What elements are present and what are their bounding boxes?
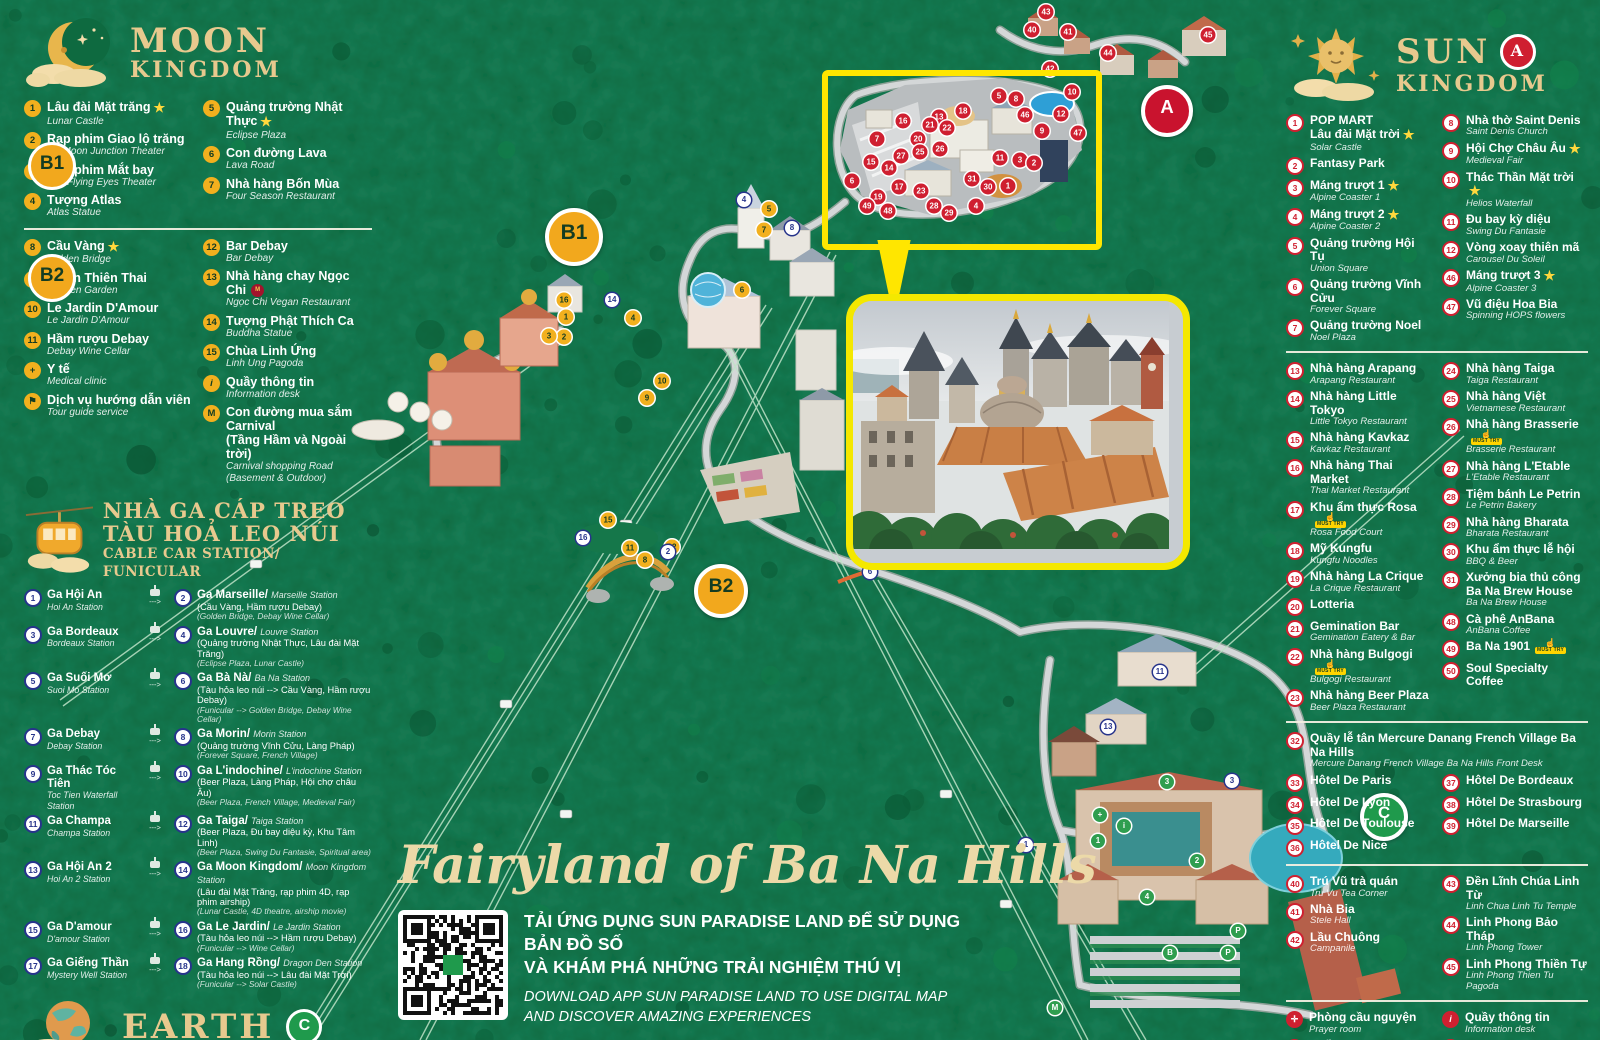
station-detail-en: (Eclipse Plaza, Lunar Castle) xyxy=(197,659,372,668)
station-number: 7 xyxy=(24,728,42,746)
item-name-en: Mercure Danang French Village Ba Na Hill… xyxy=(1310,759,1588,770)
item-number: 3 xyxy=(1286,179,1304,197)
legend-zone-badge-b1: B1 xyxy=(28,142,76,190)
legend-item: 3Máng trượt 1★Alpine Coaster 1 xyxy=(1286,179,1432,204)
cable-route-row: 1Ga Hội AnHoi An Station--->2Ga Marseill… xyxy=(24,589,372,621)
cable-car-icon: ---> xyxy=(140,815,170,858)
item-number: 13 xyxy=(1286,362,1304,380)
legend-item: 18Mỹ KungfuKungfu Noodles xyxy=(1286,542,1432,566)
item-number: 38 xyxy=(1442,796,1460,814)
item-name-vi: Chùa Linh Ứng xyxy=(226,344,316,358)
station-name: Ga Louvre/ Louvre Station xyxy=(197,626,372,639)
item-name-en: Brasserie Restaurant xyxy=(1466,445,1588,456)
item-name-vi: Y tế xyxy=(47,362,106,376)
legend-item: iQuầy thông tinInformation desk xyxy=(203,375,372,401)
item-name-en: AnBana Coffee xyxy=(1466,626,1554,637)
prayer-room-icon: ✛ xyxy=(1286,1011,1303,1028)
item-name-en: Linh Chua Linh Tu Temple xyxy=(1466,902,1588,913)
item-name-vi: Hội Chợ Châu Âu★ xyxy=(1466,142,1581,157)
item-name-vi: Hầm rượu Debay xyxy=(47,332,149,346)
item-name-vi: Rạp phim Giao lộ trăng xyxy=(47,132,185,146)
left-legend-column: MOON KINGDOM 1Lâu đài Mặt trăng★Lunar Ca… xyxy=(24,16,372,1040)
station-detail-en: (Beer Plaza, French Village, Medieval Fa… xyxy=(197,798,372,807)
item-number: 34 xyxy=(1286,796,1304,814)
sun-divider-2 xyxy=(1286,721,1588,723)
station-name-en: Suoi Mo Station xyxy=(47,685,111,695)
item-name-en: Thai Market Restaurant xyxy=(1310,486,1432,497)
item-name-en: Debay Wine Cellar xyxy=(47,346,149,358)
station-detail-en: (Funicular --> Solar Castle) xyxy=(197,980,362,989)
item-name-vi: Thác Thần Mặt trời★ xyxy=(1466,171,1588,199)
station-name-vi: Ga D'amour xyxy=(47,921,112,934)
item-name-en: Medical clinic xyxy=(47,376,106,388)
legend-item: 6Con đường LavaLava Road xyxy=(203,146,372,172)
station-name-vi: Ga Thác Tóc Tiên xyxy=(47,765,136,791)
station-number: 3 xyxy=(24,626,42,644)
legend-item: 26Nhà hàng Brasserie☝MUST TRYBrasserie R… xyxy=(1442,418,1588,456)
item-name-vi: Cầu Vàng★ xyxy=(47,239,119,255)
item-name-en: Tour guide service xyxy=(47,407,191,419)
item-name-vi: Máng trượt 1★ xyxy=(1310,179,1399,194)
legend-item: 4Máng trượt 2★Alpine Coaster 2 xyxy=(1286,208,1432,233)
earth-title: EARTH xyxy=(122,1010,274,1040)
item-name-en: Taiga Restaurant xyxy=(1466,376,1554,387)
legend-item: MCon đường mua sắm Carnival(Tầng Hầm và … xyxy=(203,405,372,484)
legend-item: 37Hôtel De Bordeaux xyxy=(1442,774,1588,792)
station-detail-en: (Golden Bridge, Debay Wine Cellar) xyxy=(197,612,338,621)
station-number: 2 xyxy=(174,589,192,607)
station-name: Ga Marseille/ Marseille Station xyxy=(197,589,338,602)
station-number: 1 xyxy=(24,589,42,607)
station-number: 4 xyxy=(174,626,192,644)
must-try-badge: ☝MUST TRY xyxy=(1315,514,1346,528)
item-name-vi: Nhà hàng L'Etable xyxy=(1466,460,1570,473)
item-name-vi: Ba Na 1901☝MUST TRY xyxy=(1466,640,1566,654)
item-number: 14 xyxy=(203,314,220,331)
station-number: 10 xyxy=(174,765,192,783)
item-name-en: Kavkaz Restaurant xyxy=(1310,445,1409,456)
star-icon: ★ xyxy=(1569,142,1581,157)
item-number: 1 xyxy=(1286,114,1304,132)
app-qr-code xyxy=(398,910,508,1020)
station-number: 11 xyxy=(24,815,42,833)
station-number: 18 xyxy=(174,957,192,975)
item-name-vi: Quảng trường Vĩnh Cửu xyxy=(1310,278,1432,305)
legend-item: 14Tượng Phật Thích CaBuddha Statue xyxy=(203,314,372,340)
station-number: 15 xyxy=(24,921,42,939)
legend-item: 25Nhà hàng ViệtVietnamese Restaurant xyxy=(1442,390,1588,414)
item-name-vi: Máng trượt 2★ xyxy=(1310,208,1399,223)
item-name-vi: Hôtel De Marseille xyxy=(1466,817,1569,830)
item-name-vi: Mỹ Kungfu xyxy=(1310,542,1378,555)
station-name-en: Toc Tien Waterfall Station xyxy=(47,790,136,810)
item-name-vi: Nhà hàng Bulgogi☝MUST TRY xyxy=(1310,648,1432,675)
must-try-badge: ☝MUST TRY xyxy=(1315,661,1346,675)
footer: Fairyland of Ba Na Hills TẢI ỨNG DỤNG SU… xyxy=(398,838,998,1027)
earth-zone-badge: C xyxy=(286,1009,322,1040)
item-number: 37 xyxy=(1442,774,1460,792)
legend-item: 5Quảng trường Nhật Thực★Eclipse Plaza xyxy=(203,100,372,141)
legend-item: 11Đu bay kỳ diệuSwing Du Fantasie xyxy=(1442,213,1588,237)
item-name-vi: Nhà hàng Bốn Mùa xyxy=(226,177,339,191)
item-name-en: Gemination Eatery & Bar xyxy=(1310,633,1415,644)
moon-list-2: 8Cầu Vàng★Golden Bridge9Vườn Thiên ThaiH… xyxy=(24,239,372,490)
station-detail-vi: (Tàu hỏa leo núi --> Cầu Vàng, Hầm rượu … xyxy=(197,685,372,706)
legend-item: 15Chùa Linh ỨngLinh Ung Pagoda xyxy=(203,344,372,370)
item-name-en: Bharata Restaurant xyxy=(1466,529,1569,540)
app-cta-vi-line1: TẢI ỨNG DỤNG SUN PARADISE LAND ĐỂ SỬ DỤN… xyxy=(524,910,998,956)
app-cta-vi-line2: VÀ KHÁM PHÁ NHỮNG TRẢI NGHIỆM THÚ VỊ xyxy=(524,956,998,979)
legend-item: 12Bar DebayBar Debay xyxy=(203,239,372,265)
cable-title-vi-2: TÀU HOẢ LEO NÚI xyxy=(103,522,372,545)
legend-item: 5Quảng trường Hội TụUnion Square xyxy=(1286,237,1432,275)
sun-spiritual: 40Trú Vũ trà quánTru Vu Tea Corner41Nhà … xyxy=(1286,875,1588,996)
item-name-vi: Phòng cầu nguyện xyxy=(1309,1011,1416,1024)
item-number: 14 xyxy=(1286,390,1304,408)
item-number: 11 xyxy=(1442,213,1460,231)
station-detail-vi: (Beer Plaza, Làng Pháp, Hội chợ châu Âu) xyxy=(197,777,372,798)
sun-dining: 13Nhà hàng ArapangArapang Restaurant14Nh… xyxy=(1286,362,1588,717)
item-name-en: Carousel Du Soleil xyxy=(1466,255,1579,266)
legend-item: 13Nhà hàng chay Ngọc ChiMNgọc Chi Vegan … xyxy=(203,269,372,309)
station-number: 9 xyxy=(24,765,42,783)
item-number: 5 xyxy=(1286,237,1304,255)
legend-item: 1Lâu đài Mặt trăng★Lunar Castle xyxy=(24,100,193,127)
item-name-en: Alpine Coaster 1 xyxy=(1310,193,1399,204)
station-name-en: Dragon Den Station xyxy=(283,958,362,968)
item-number: 10 xyxy=(24,301,41,318)
station-detail-en: (Beer Plaza, Swing Du Fantasie, Spiritua… xyxy=(197,848,372,857)
item-name-en: Medieval Fair xyxy=(1466,156,1581,167)
item-number: 6 xyxy=(1286,278,1304,296)
item-name-vi: Linh Phong Bảo Tháp xyxy=(1466,916,1588,943)
information-icon: i xyxy=(1442,1011,1459,1028)
legend-item: 1POP MARTLâu đài Mặt trời★Solar Castle xyxy=(1286,114,1432,154)
item-number: 9 xyxy=(1442,142,1460,160)
legend-item: 24Nhà hàng TaigaTaiga Restaurant xyxy=(1442,362,1588,386)
sun-services: ✛Phòng cầu nguyệnPrayer room+Y tếMedical… xyxy=(1286,1011,1588,1040)
highlight-box xyxy=(822,70,1102,250)
item-number: 27 xyxy=(1442,460,1460,478)
station-name: Ga Bà Nà/ Ba Na Station xyxy=(197,672,372,685)
cable-route-row: 7Ga DebayDebay Station--->8Ga Morin/ Mor… xyxy=(24,728,372,760)
station-name-vi: Ga Hội An xyxy=(47,589,103,602)
item-name-pre: POP MART xyxy=(1310,114,1415,127)
item-number: 10 xyxy=(1442,171,1460,189)
item-name-en: Little Tokyo Restaurant xyxy=(1310,417,1432,428)
item-name-en: Helios Waterfall xyxy=(1466,199,1588,210)
item-name-en: Ngọc Chi Vegan Restaurant xyxy=(226,297,372,309)
moon-kingdom-header: MOON KINGDOM xyxy=(24,16,372,90)
item-number: 8 xyxy=(1442,114,1460,132)
item-name-vi: Hôtel De Paris xyxy=(1310,774,1391,787)
item-number: 23 xyxy=(1286,689,1304,707)
item-name-vi: Quảng trường Noel xyxy=(1310,319,1421,332)
station-name-en: Bordeaux Station xyxy=(47,638,119,648)
station-name-en: D'amour Station xyxy=(47,934,112,944)
item-name-en: Bulgogi Restaurant xyxy=(1310,675,1432,686)
item-name-en: Information desk xyxy=(1465,1025,1550,1036)
tour-guide-icon: ⚑ xyxy=(24,393,41,410)
item-name-vi: Soul Specialty Coffee xyxy=(1466,662,1588,689)
legend-item: 39Hôtel De Marseille xyxy=(1442,817,1588,835)
item-name-vi: Nhà hàng Arapang xyxy=(1310,362,1416,375)
cable-route-row: 11Ga ChampaChampa Station--->12Ga Taiga/… xyxy=(24,815,372,858)
item-number: 30 xyxy=(1442,543,1460,561)
item-name-vi: Hôtel De Strasbourg xyxy=(1466,796,1582,809)
legend-item: 22Nhà hàng Bulgogi☝MUST TRYBulgogi Resta… xyxy=(1286,648,1432,686)
item-name-vi: Nhà hàng Beer Plaza xyxy=(1310,689,1429,702)
item-name-en: Four Season Restaurant xyxy=(226,191,339,203)
item-name-vi: Trú Vũ trà quán xyxy=(1310,875,1398,888)
item-number: 7 xyxy=(203,177,220,194)
item-name-en: Tru Vu Tea Corner xyxy=(1310,889,1398,900)
sun-hotels: 33Hôtel De Paris34Hôtel De Lyon35Hôtel D… xyxy=(1286,774,1588,860)
legend-item: 16Nhà hàng Thai MarketThai Market Restau… xyxy=(1286,459,1432,497)
legend-item: 38Hôtel De Strasbourg xyxy=(1442,796,1588,814)
french-village-photo-inset xyxy=(846,294,1190,570)
item-number: 28 xyxy=(1442,488,1460,506)
item-name-vi: Dịch vụ hướng dẫn viên xyxy=(47,393,191,407)
station-detail-vi: (Lâu đài Mặt Trăng, rạp phim 4D, rạp phi… xyxy=(197,887,372,908)
item-number: 17 xyxy=(1286,501,1304,519)
item-name-en: Forever Square xyxy=(1310,305,1432,316)
item-name-en: Information desk xyxy=(226,389,314,401)
item-name-en: Stele Hall xyxy=(1310,916,1355,927)
legend-item: 44Linh Phong Bảo ThápLinh Phong Tower xyxy=(1442,916,1588,954)
item-number: 2 xyxy=(1286,157,1304,175)
legend-item: ⚑Dịch vụ hướng dẫn viênTour guide servic… xyxy=(24,393,193,419)
station-number: 8 xyxy=(174,728,192,746)
item-number: 25 xyxy=(1442,390,1460,408)
item-name-en: Bar Debay xyxy=(226,253,288,265)
item-number: 13 xyxy=(203,269,220,286)
legend-item: 29Nhà hàng BharataBharata Restaurant xyxy=(1442,516,1588,540)
legend-item: 33Hôtel De Paris xyxy=(1286,774,1432,792)
information-icon: i xyxy=(203,375,220,392)
item-name-en: Rosa Food Court xyxy=(1310,528,1432,539)
item-number: 43 xyxy=(1442,875,1460,893)
poster-title: Fairyland of Ba Na Hills xyxy=(398,838,998,894)
item-number: 21 xyxy=(1286,620,1304,638)
item-name-vi: Khu ẩm thực Rosa☝MUST TRY xyxy=(1310,501,1432,528)
item-name-en: Linh Ung Pagoda xyxy=(226,358,316,370)
legend-item: 21Gemination BarGemination Eatery & Bar xyxy=(1286,620,1432,644)
item-number: 19 xyxy=(1286,570,1304,588)
item-number: 36 xyxy=(1286,839,1304,857)
station-number: 14 xyxy=(174,861,192,879)
item-name-vi: Lâu đài Mặt trời★ xyxy=(1310,128,1415,143)
legend-item: 41Nhà BiaStele Hall xyxy=(1286,903,1432,927)
legend-item: 11Hầm rượu DebayDebay Wine Cellar xyxy=(24,332,193,358)
item-number: 32 xyxy=(1286,732,1304,750)
legend-item: 47Vũ điệu Hoa BiaSpinning HOPS flowers xyxy=(1442,298,1588,322)
cable-car-header: NHÀ GA CÁP TREO TÀU HOẢ LEO NÚI CABLE CA… xyxy=(24,499,372,581)
station-name-vi: Ga Hội An 2 xyxy=(47,861,112,874)
station-name: Ga Taiga/ Taiga Station xyxy=(197,815,372,828)
station-name: Ga Moon Kingdom/ Moon Kingdom Station xyxy=(197,861,372,886)
item-number: 7 xyxy=(1286,319,1304,337)
item-name-en: Linh Phong Thien Tu Pagoda xyxy=(1466,971,1588,993)
cable-route-row: 5Ga Suối MơSuoi Mo Station--->6Ga Bà Nà/… xyxy=(24,672,372,724)
star-icon: ★ xyxy=(1469,184,1481,199)
legend-item: 10Thác Thần Mặt trời★Helios Waterfall xyxy=(1442,171,1588,210)
item-number: 5 xyxy=(203,100,220,117)
item-name-vi: Nhà hàng Brasserie☝MUST TRY xyxy=(1466,418,1588,445)
station-name-vi: Ga Giếng Thần xyxy=(47,957,129,970)
item-name-en: BBQ & Beer xyxy=(1466,557,1575,568)
item-name-en: Prayer room xyxy=(1309,1025,1416,1036)
moon-list-1: 1Lâu đài Mặt trăng★Lunar Castle2Rạp phim… xyxy=(24,100,372,224)
station-name-en: Hoi An Station xyxy=(47,602,103,612)
item-name-vi: Nhà hàng Thai Market xyxy=(1310,459,1432,486)
moon-divider xyxy=(24,228,372,230)
station-detail-en: (Lunar Castle, 4D theatre, airship movie… xyxy=(197,907,372,916)
sun-kingdom-legend: SUN A KINGDOM 1POP MARTLâu đài Mặt trời★… xyxy=(1286,26,1588,1040)
sun-kingdom-header: SUN A KINGDOM xyxy=(1286,26,1588,104)
item-name-vi: Vòng xoay thiên mã xyxy=(1466,241,1579,254)
item-name-en: Lava Road xyxy=(226,160,327,172)
station-name: Ga Le Jardin/ Le Jardin Station xyxy=(197,921,356,934)
item-name-vi: Quảng trường Hội Tụ xyxy=(1310,237,1432,264)
item-number: 33 xyxy=(1286,774,1304,792)
item-name-vi: Tiệm bánh Le Petrin xyxy=(1466,488,1580,501)
cable-car-icon: ---> xyxy=(140,765,170,811)
item-name-vi2: Ba Na Brew House xyxy=(1466,585,1581,598)
station-name-en: Mystery Well Station xyxy=(47,970,129,980)
station-name-vi: Ga Bordeaux xyxy=(47,626,119,639)
item-number: 1 xyxy=(24,100,41,117)
star-icon: ★ xyxy=(1544,269,1556,284)
item-number: 48 xyxy=(1442,613,1460,631)
item-name-vi: Nhà Bia xyxy=(1310,903,1355,916)
station-name: Ga L'indochine/ L'indochine Station xyxy=(197,765,372,778)
item-number: 6 xyxy=(203,146,220,163)
legend-item: 20Lotteria xyxy=(1286,598,1432,616)
item-name-vi: Con đường Lava xyxy=(226,146,327,160)
item-name-en: Buddha Statue xyxy=(226,328,354,340)
legend-item: 19Nhà hàng La CriqueLa Crique Restaurant xyxy=(1286,570,1432,594)
legend-item: 35Hôtel De Toulouse xyxy=(1286,817,1432,835)
cable-route-row: 13Ga Hội An 2Hoi An 2 Station--->14Ga Mo… xyxy=(24,861,372,916)
must-try-badge: ☝MUST TRY xyxy=(1535,640,1566,654)
item-name-vi: Tượng Phật Thích Ca xyxy=(226,314,354,328)
station-name-vi: Ga Champa xyxy=(47,815,111,828)
carnival-shopping-icon: M xyxy=(203,405,220,422)
legend-item: 17Khu ẩm thực Rosa☝MUST TRYRosa Food Cou… xyxy=(1286,501,1432,539)
cable-route-list: 1Ga Hội AnHoi An Station--->2Ga Marseill… xyxy=(24,589,372,989)
item-name-en: Alpine Coaster 3 xyxy=(1466,284,1555,295)
item-name-vi: Khu ẩm thực lễ hội xyxy=(1466,543,1575,556)
app-cta-en-line1: DOWNLOAD APP SUN PARADISE LAND TO USE DI… xyxy=(524,987,998,1007)
item-name-en: Arapang Restaurant xyxy=(1310,376,1416,387)
legend-item: 15Nhà hàng KavkazKavkaz Restaurant xyxy=(1286,431,1432,455)
legend-item: 13Nhà hàng ArapangArapang Restaurant xyxy=(1286,362,1432,386)
item-name-vi: Lotteria xyxy=(1310,598,1354,611)
legend-item: 4Tượng AtlasAtlas Statue xyxy=(24,193,193,219)
legend-item: 49Ba Na 1901☝MUST TRY xyxy=(1442,640,1588,658)
legend-zone-badge-b2: B2 xyxy=(28,254,76,302)
medical-icon: + xyxy=(24,362,41,379)
legend-item: 2Fantasy Park xyxy=(1286,157,1432,175)
station-number: 12 xyxy=(174,815,192,833)
item-number: 40 xyxy=(1286,875,1304,893)
sun-title: SUN xyxy=(1396,35,1490,69)
legend-item: 48Cà phê AnBanaAnBana Coffee xyxy=(1442,613,1588,637)
station-detail-en: (Funicular --> Wine Cellar) xyxy=(197,944,356,953)
item-name-en: Atlas Statue xyxy=(47,207,121,219)
legend-item: 6Quảng trường Vĩnh CửuForever Square xyxy=(1286,278,1432,316)
star-icon: ★ xyxy=(1403,128,1415,143)
legend-item: 32Quầy lễ tân Mercure Danang French Vill… xyxy=(1286,732,1588,770)
legend-item: 7Quảng trường NoelNoel Plaza xyxy=(1286,319,1432,343)
must-try-badge: ☝MUST TRY xyxy=(1471,431,1502,445)
item-number: 47 xyxy=(1442,298,1460,316)
station-name-en: Marseille Station xyxy=(271,590,338,600)
station-name-en: Le Jardin Station xyxy=(273,922,341,932)
item-name-vi: Quầy lễ tân Mercure Danang French Villag… xyxy=(1310,732,1588,759)
legend-item: 42Lầu ChuôngCampanile xyxy=(1286,931,1432,955)
legend-item: 10Le Jardin D'AmourLe Jardin D'Amour xyxy=(24,301,193,327)
item-number: 15 xyxy=(1286,431,1304,449)
item-name-vi: Linh Phong Thiền Tự xyxy=(1466,958,1588,971)
station-detail-en: (Funicular --> Golden Bridge, Debay Wine… xyxy=(197,706,372,725)
item-number: 20 xyxy=(1286,598,1304,616)
legend-item: ✛Phòng cầu nguyệnPrayer room xyxy=(1286,1011,1432,1035)
legend-item: 40Trú Vũ trà quánTru Vu Tea Corner xyxy=(1286,875,1432,899)
station-name-en: Champa Station xyxy=(47,828,111,838)
station-name-en: Hoi An 2 Station xyxy=(47,874,112,884)
item-name-en: Union Square xyxy=(1310,264,1432,275)
item-name-vi: Le Jardin D'Amour xyxy=(47,301,158,315)
item-number: 11 xyxy=(24,332,41,349)
item-name-vi: Fantasy Park xyxy=(1310,157,1385,170)
star-icon: ★ xyxy=(260,115,272,130)
item-name-vi: Vũ điệu Hoa Bia xyxy=(1466,298,1565,311)
item-name-vi: Nhà hàng Kavkaz xyxy=(1310,431,1409,444)
legend-item: 7Nhà hàng Bốn MùaFour Season Restaurant xyxy=(203,177,372,203)
item-name-vi: Hôtel De Nice xyxy=(1310,839,1387,852)
station-name-vi: Ga Debay xyxy=(47,728,102,741)
item-name-en: La Crique Restaurant xyxy=(1310,584,1423,595)
item-number: 12 xyxy=(1442,241,1460,259)
item-name-en: Saint Denis Church xyxy=(1466,127,1581,138)
cable-car-illustration xyxy=(24,504,95,576)
item-name-vi: Đu bay kỳ diệu xyxy=(1466,213,1551,226)
station-name: Ga Hang Rồng/ Dragon Den Station xyxy=(197,957,362,970)
item-name-en: Linh Phong Tower xyxy=(1466,943,1588,954)
item-name-vi: Đền Lĩnh Chúa Linh Từ xyxy=(1466,875,1588,902)
item-name-vi: Xưởng bia thủ công xyxy=(1466,571,1581,584)
legend-item: 14Nhà hàng Little TokyoLittle Tokyo Rest… xyxy=(1286,390,1432,428)
cable-route-row: 17Ga Giếng ThầnMystery Well Station--->1… xyxy=(24,957,372,989)
item-name-vi: Nhà hàng La Crique xyxy=(1310,570,1423,583)
legend-item: 34Hôtel De Lyon xyxy=(1286,796,1432,814)
item-number: 49 xyxy=(1442,640,1460,658)
item-number: 26 xyxy=(1442,418,1460,436)
station-name-en: Taiga Station xyxy=(251,816,303,826)
cable-car-icon: ---> xyxy=(140,957,170,989)
item-number: 24 xyxy=(1442,362,1460,380)
item-name-vi: Con đường mua sắm Carnival xyxy=(226,405,372,433)
legend-item: 23Nhà hàng Beer PlazaBeer Plaza Restaura… xyxy=(1286,689,1432,713)
item-name-en: Lunar Castle xyxy=(47,116,165,128)
legend-item: 46Máng trượt 3★Alpine Coaster 3 xyxy=(1442,269,1588,294)
item-name-en: Ba Na Brew House xyxy=(1466,598,1581,609)
legend-item: +Y tếMedical clinic xyxy=(24,362,193,388)
item-name-en: Vietnamese Restaurant xyxy=(1466,404,1565,415)
cable-car-icon: ---> xyxy=(140,626,170,669)
